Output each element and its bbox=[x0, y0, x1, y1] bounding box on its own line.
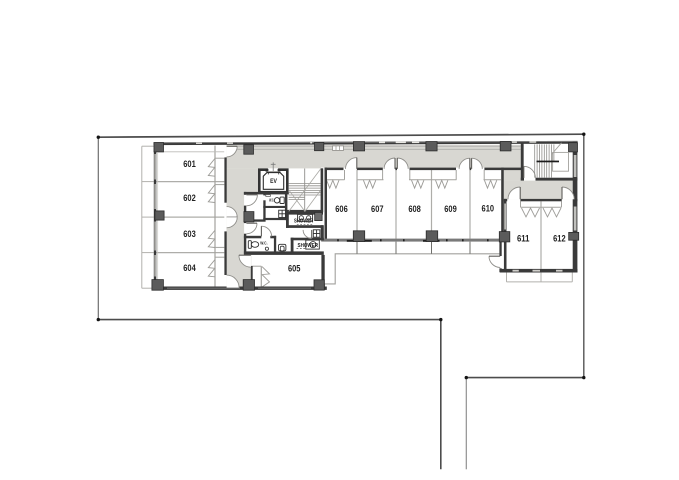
svg-text:601: 601 bbox=[183, 159, 196, 169]
svg-text:W.C.: W.C. bbox=[260, 241, 267, 246]
svg-text:604: 604 bbox=[183, 263, 196, 273]
svg-text:610: 610 bbox=[482, 204, 495, 214]
svg-text:EV: EV bbox=[270, 178, 277, 185]
svg-text:609: 609 bbox=[444, 204, 457, 214]
svg-text:605: 605 bbox=[288, 263, 301, 273]
svg-text:602: 602 bbox=[183, 193, 196, 203]
svg-text:608: 608 bbox=[408, 204, 421, 214]
svg-text:612: 612 bbox=[553, 233, 566, 243]
svg-text:SHOWER: SHOWER bbox=[298, 243, 319, 249]
svg-text:603: 603 bbox=[183, 229, 196, 239]
svg-text:607: 607 bbox=[371, 204, 384, 214]
svg-text:606: 606 bbox=[335, 204, 348, 214]
svg-text:SHOWER: SHOWER bbox=[294, 219, 313, 225]
svg-text:611: 611 bbox=[517, 234, 530, 244]
svg-text:W.C.: W.C. bbox=[269, 197, 274, 202]
